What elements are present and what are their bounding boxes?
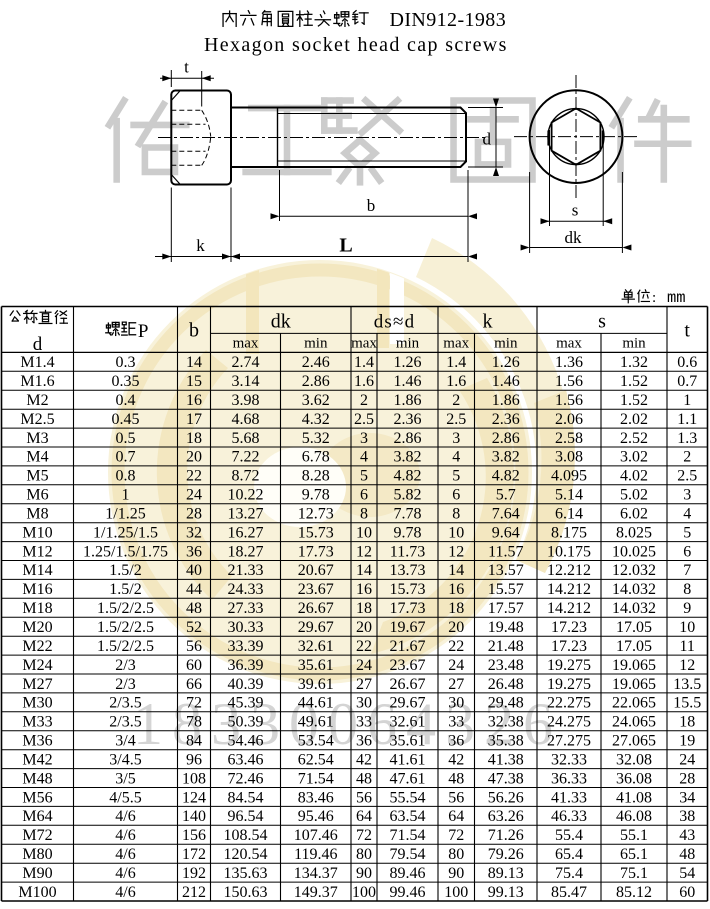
svg-text:43: 43 — [679, 827, 695, 844]
svg-text:17.73: 17.73 — [298, 543, 334, 560]
svg-text:4/6: 4/6 — [115, 846, 135, 863]
svg-text:72: 72 — [356, 827, 372, 844]
svg-text:4/6: 4/6 — [115, 884, 135, 901]
svg-text:8: 8 — [360, 506, 368, 523]
svg-text:16.27: 16.27 — [228, 524, 264, 541]
svg-text:10.175: 10.175 — [547, 543, 591, 560]
svg-text:22: 22 — [448, 638, 464, 655]
svg-text:150.63: 150.63 — [224, 884, 268, 901]
svg-text:36.39: 36.39 — [228, 657, 264, 674]
svg-text:10.025: 10.025 — [612, 543, 656, 560]
svg-text:b: b — [189, 320, 199, 342]
svg-text:ds≈d: ds≈d — [374, 312, 416, 333]
svg-text:5.68: 5.68 — [232, 430, 260, 447]
svg-text:1.56: 1.56 — [555, 373, 583, 390]
svg-text:7.22: 7.22 — [232, 449, 260, 466]
svg-text:3: 3 — [360, 430, 368, 447]
svg-text:17.05: 17.05 — [616, 619, 652, 636]
svg-text:33: 33 — [356, 714, 372, 731]
svg-text:1.46: 1.46 — [394, 373, 422, 390]
svg-text:49.61: 49.61 — [298, 714, 334, 731]
svg-text:6.02: 6.02 — [620, 506, 648, 523]
svg-text:M6: M6 — [26, 487, 48, 504]
svg-text:4.32: 4.32 — [302, 411, 330, 428]
svg-text:24: 24 — [186, 487, 202, 504]
svg-text:4.82: 4.82 — [394, 468, 422, 485]
svg-text:38: 38 — [679, 808, 695, 825]
svg-text:36: 36 — [448, 733, 464, 750]
svg-text:17.73: 17.73 — [390, 600, 426, 617]
svg-text:3/4.5: 3/4.5 — [109, 751, 141, 768]
svg-text:14: 14 — [186, 354, 202, 371]
svg-text:2/3: 2/3 — [115, 657, 135, 674]
svg-text:45.39: 45.39 — [228, 695, 264, 712]
svg-text:23.48: 23.48 — [488, 657, 524, 674]
svg-text:63.26: 63.26 — [488, 808, 524, 825]
svg-text:47.61: 47.61 — [390, 770, 426, 787]
svg-text:14.212: 14.212 — [547, 581, 591, 598]
svg-text:95.46: 95.46 — [298, 808, 334, 825]
svg-text:8.025: 8.025 — [616, 524, 652, 541]
svg-text:M12: M12 — [22, 543, 52, 560]
svg-text:0.35: 0.35 — [112, 373, 140, 390]
svg-text:27: 27 — [356, 676, 372, 693]
svg-text:55.4: 55.4 — [555, 827, 583, 844]
svg-text:13.73: 13.73 — [390, 562, 426, 579]
svg-text:119.46: 119.46 — [294, 846, 337, 863]
svg-text:64: 64 — [448, 808, 464, 825]
svg-text:2.46: 2.46 — [302, 354, 330, 371]
svg-text:M2.5: M2.5 — [20, 411, 54, 428]
svg-text:72: 72 — [448, 827, 464, 844]
svg-text:M27: M27 — [22, 676, 52, 693]
svg-text:26.67: 26.67 — [390, 676, 426, 693]
svg-text:23.67: 23.67 — [390, 657, 426, 674]
svg-text:8.28: 8.28 — [302, 468, 330, 485]
svg-text:100: 100 — [352, 884, 376, 901]
svg-text:18: 18 — [448, 600, 464, 617]
svg-text:2.58: 2.58 — [555, 430, 583, 447]
svg-text:16: 16 — [356, 581, 372, 598]
svg-text:1.4: 1.4 — [446, 354, 466, 371]
svg-text:120.54: 120.54 — [224, 846, 268, 863]
svg-text:4: 4 — [360, 449, 368, 466]
svg-text:20: 20 — [186, 449, 202, 466]
svg-text:12: 12 — [356, 543, 372, 560]
svg-text:1.52: 1.52 — [620, 392, 648, 409]
svg-text:15.73: 15.73 — [390, 581, 426, 598]
svg-text:35.38: 35.38 — [488, 733, 524, 750]
svg-text:2.5: 2.5 — [354, 411, 374, 428]
svg-text:M33: M33 — [22, 714, 52, 731]
svg-text:3.08: 3.08 — [555, 449, 583, 466]
svg-text:P: P — [138, 321, 149, 342]
svg-text:M90: M90 — [22, 865, 52, 882]
svg-text:36.08: 36.08 — [616, 770, 652, 787]
svg-text:19: 19 — [679, 733, 695, 750]
svg-text:10: 10 — [448, 524, 464, 541]
svg-text:47.38: 47.38 — [488, 770, 524, 787]
svg-text:34: 34 — [679, 789, 695, 806]
svg-text:b: b — [367, 196, 376, 215]
svg-text:d: d — [483, 130, 492, 149]
svg-text:72.46: 72.46 — [228, 770, 264, 787]
svg-text:5: 5 — [683, 524, 691, 541]
svg-text:max: max — [351, 336, 377, 352]
svg-text:18.27: 18.27 — [228, 543, 264, 560]
svg-text:4.095: 4.095 — [551, 468, 587, 485]
svg-text:s: s — [598, 311, 606, 333]
svg-text:1.6: 1.6 — [446, 373, 466, 390]
svg-text:M80: M80 — [22, 846, 52, 863]
svg-text:27.33: 27.33 — [228, 600, 264, 617]
svg-text:13.5: 13.5 — [673, 676, 701, 693]
svg-text:9: 9 — [683, 600, 691, 617]
svg-text:55.54: 55.54 — [390, 789, 426, 806]
svg-text:90: 90 — [356, 865, 372, 882]
svg-text:2.86: 2.86 — [394, 430, 422, 447]
svg-text:M18: M18 — [22, 600, 52, 617]
svg-text:M1.6: M1.6 — [20, 373, 54, 390]
svg-text:65.4: 65.4 — [555, 846, 583, 863]
svg-text:96: 96 — [186, 751, 202, 768]
svg-text:M24: M24 — [22, 657, 52, 674]
svg-text:19.065: 19.065 — [612, 657, 656, 674]
svg-text:1.3: 1.3 — [677, 430, 697, 447]
svg-text:12.032: 12.032 — [612, 562, 656, 579]
svg-text:172: 172 — [182, 846, 206, 863]
svg-text:134.37: 134.37 — [294, 865, 338, 882]
svg-text:1: 1 — [122, 487, 130, 504]
svg-text:4/6: 4/6 — [115, 827, 135, 844]
svg-text:17.57: 17.57 — [488, 600, 524, 617]
svg-text:13.57: 13.57 — [488, 562, 524, 579]
svg-text:22.065: 22.065 — [612, 695, 656, 712]
svg-text:89.13: 89.13 — [488, 865, 524, 882]
svg-text:32.33: 32.33 — [551, 751, 587, 768]
svg-text:26.67: 26.67 — [298, 600, 334, 617]
svg-text:12.212: 12.212 — [547, 562, 591, 579]
svg-text:2.74: 2.74 — [232, 354, 260, 371]
svg-text:M36: M36 — [22, 733, 52, 750]
svg-text:35.61: 35.61 — [390, 733, 426, 750]
svg-text:41.38: 41.38 — [488, 751, 524, 768]
svg-text:108: 108 — [182, 770, 206, 787]
svg-text:65.1: 65.1 — [620, 846, 648, 863]
svg-text:0.8: 0.8 — [116, 468, 136, 485]
svg-text:1.5/2: 1.5/2 — [109, 562, 141, 579]
svg-text:27.275: 27.275 — [547, 733, 591, 750]
svg-text:max: max — [556, 336, 582, 352]
svg-text:18: 18 — [356, 600, 372, 617]
svg-text:99.46: 99.46 — [390, 884, 426, 901]
svg-text:1.6: 1.6 — [354, 373, 374, 390]
svg-text:48: 48 — [448, 770, 464, 787]
svg-text:1/1.25: 1/1.25 — [105, 506, 145, 523]
svg-text:135.63: 135.63 — [224, 865, 268, 882]
svg-text:83.46: 83.46 — [298, 789, 334, 806]
svg-text:1.46: 1.46 — [492, 373, 520, 390]
svg-text:29.67: 29.67 — [298, 619, 334, 636]
svg-text:1.32: 1.32 — [620, 354, 648, 371]
svg-text:48: 48 — [186, 600, 202, 617]
svg-text:6.78: 6.78 — [302, 449, 330, 466]
svg-text:19.48: 19.48 — [488, 619, 524, 636]
svg-text:89.46: 89.46 — [390, 865, 426, 882]
svg-text:62.54: 62.54 — [298, 751, 334, 768]
svg-text:22: 22 — [356, 638, 372, 655]
svg-text:M100: M100 — [18, 884, 56, 901]
svg-text:3.62: 3.62 — [302, 392, 330, 409]
svg-text:8: 8 — [683, 581, 691, 598]
svg-text:33: 33 — [448, 714, 464, 731]
svg-text:3/5: 3/5 — [115, 770, 135, 787]
svg-text:32.61: 32.61 — [390, 714, 426, 731]
svg-text:22.275: 22.275 — [547, 695, 591, 712]
svg-text:99.13: 99.13 — [488, 884, 524, 901]
svg-text:30: 30 — [356, 695, 372, 712]
svg-text:1.86: 1.86 — [394, 392, 422, 409]
svg-text:M8: M8 — [26, 506, 48, 523]
svg-text:32.61: 32.61 — [298, 638, 334, 655]
svg-text:56: 56 — [356, 789, 372, 806]
svg-text:212: 212 — [182, 884, 206, 901]
svg-text:55.1: 55.1 — [620, 827, 648, 844]
svg-text:24: 24 — [356, 657, 372, 674]
svg-text:79.26: 79.26 — [488, 846, 524, 863]
svg-text:3: 3 — [683, 487, 691, 504]
svg-text:7.64: 7.64 — [492, 506, 520, 523]
svg-text:90: 90 — [448, 865, 464, 882]
svg-text:s: s — [572, 201, 579, 220]
svg-text:7: 7 — [683, 562, 691, 579]
svg-text:1.26: 1.26 — [492, 354, 520, 371]
svg-text:1.26: 1.26 — [394, 354, 422, 371]
svg-text:4/5.5: 4/5.5 — [109, 789, 141, 806]
svg-text:3/4: 3/4 — [115, 733, 135, 750]
svg-text:1.52: 1.52 — [620, 373, 648, 390]
svg-text:29.48: 29.48 — [488, 695, 524, 712]
svg-text:19.67: 19.67 — [390, 619, 426, 636]
svg-text:20: 20 — [448, 619, 464, 636]
svg-text:84: 84 — [186, 733, 202, 750]
svg-text:3.82: 3.82 — [492, 449, 520, 466]
svg-text:1.5/2/2.5: 1.5/2/2.5 — [97, 638, 154, 655]
svg-text:42: 42 — [448, 751, 464, 768]
svg-text:21.48: 21.48 — [488, 638, 524, 655]
svg-text:18: 18 — [186, 430, 202, 447]
svg-text:5.14: 5.14 — [555, 487, 583, 504]
svg-text:5.82: 5.82 — [394, 487, 422, 504]
svg-text:5.32: 5.32 — [302, 430, 330, 447]
svg-text:42: 42 — [356, 751, 372, 768]
svg-text:27.065: 27.065 — [612, 733, 656, 750]
svg-text:24.275: 24.275 — [547, 714, 591, 731]
svg-text:85.12: 85.12 — [616, 884, 652, 901]
svg-text:min: min — [304, 336, 328, 352]
svg-text:t: t — [184, 58, 189, 77]
svg-text:1.5/2/2.5: 1.5/2/2.5 — [97, 619, 154, 636]
svg-text:15.5: 15.5 — [673, 695, 701, 712]
svg-text:M10: M10 — [22, 524, 52, 541]
svg-text:84.54: 84.54 — [228, 789, 264, 806]
svg-text:4: 4 — [683, 506, 691, 523]
svg-text:78: 78 — [186, 714, 202, 731]
svg-text:60: 60 — [186, 657, 202, 674]
svg-text:20: 20 — [356, 619, 372, 636]
svg-text:2.02: 2.02 — [620, 411, 648, 428]
svg-text:17.23: 17.23 — [551, 638, 587, 655]
svg-text:16: 16 — [186, 392, 202, 409]
svg-text:75.1: 75.1 — [620, 865, 648, 882]
svg-text:1.5/2/2.5: 1.5/2/2.5 — [97, 600, 154, 617]
svg-text:M56: M56 — [22, 789, 52, 806]
svg-text:0.4: 0.4 — [116, 392, 136, 409]
svg-text:44: 44 — [186, 581, 202, 598]
svg-text:M48: M48 — [22, 770, 52, 787]
svg-text:3: 3 — [452, 430, 460, 447]
svg-text:71.26: 71.26 — [488, 827, 524, 844]
svg-text:108.54: 108.54 — [224, 827, 268, 844]
svg-text:107.46: 107.46 — [294, 827, 338, 844]
svg-text:71.54: 71.54 — [390, 827, 426, 844]
svg-text:2.86: 2.86 — [492, 430, 520, 447]
svg-text:0.7: 0.7 — [677, 373, 697, 390]
svg-text:5: 5 — [452, 468, 460, 485]
svg-text:79.54: 79.54 — [390, 846, 426, 863]
svg-text:M4: M4 — [26, 449, 48, 466]
svg-text:10: 10 — [679, 619, 695, 636]
svg-text:M2: M2 — [26, 392, 48, 409]
svg-text:21.33: 21.33 — [228, 562, 264, 579]
svg-text:8.72: 8.72 — [232, 468, 260, 485]
svg-text:24.33: 24.33 — [228, 581, 264, 598]
svg-text:4.68: 4.68 — [232, 411, 260, 428]
svg-text:2.5: 2.5 — [446, 411, 466, 428]
svg-text:1.36: 1.36 — [555, 354, 583, 371]
svg-text:3.02: 3.02 — [620, 449, 648, 466]
svg-text:8.175: 8.175 — [551, 524, 587, 541]
svg-text:80: 80 — [356, 846, 372, 863]
svg-text:M3: M3 — [26, 430, 48, 447]
svg-text:75.4: 75.4 — [555, 865, 583, 882]
svg-text:2.5: 2.5 — [677, 468, 697, 485]
svg-text:52: 52 — [186, 619, 202, 636]
svg-text:6.14: 6.14 — [555, 506, 583, 523]
svg-text:19.275: 19.275 — [547, 676, 591, 693]
svg-text:8: 8 — [452, 506, 460, 523]
svg-text:3.14: 3.14 — [232, 373, 260, 390]
svg-text:14: 14 — [356, 562, 372, 579]
svg-text:20.67: 20.67 — [298, 562, 334, 579]
svg-text:2.86: 2.86 — [302, 373, 330, 390]
svg-text:41.08: 41.08 — [616, 789, 652, 806]
svg-text:72: 72 — [186, 695, 202, 712]
svg-text:6: 6 — [452, 487, 460, 504]
svg-text:46.08: 46.08 — [616, 808, 652, 825]
svg-text:DIN912-1983: DIN912-1983 — [390, 9, 507, 31]
svg-text:4/6: 4/6 — [115, 865, 135, 882]
svg-text:4: 4 — [452, 449, 460, 466]
svg-text:39.61: 39.61 — [298, 676, 334, 693]
svg-text:5.7: 5.7 — [496, 487, 516, 504]
svg-text:9.64: 9.64 — [492, 524, 520, 541]
svg-text:mm: mm — [667, 289, 686, 307]
svg-text:40: 40 — [186, 562, 202, 579]
svg-text:15: 15 — [186, 373, 202, 390]
svg-text:21.67: 21.67 — [390, 638, 426, 655]
svg-text:4/6: 4/6 — [115, 808, 135, 825]
svg-text:32.38: 32.38 — [488, 714, 524, 731]
svg-text:19.065: 19.065 — [612, 676, 656, 693]
svg-text:54.46: 54.46 — [228, 733, 264, 750]
svg-text:24.065: 24.065 — [612, 714, 656, 731]
svg-text:M1.4: M1.4 — [20, 354, 54, 371]
svg-text:1.5/2: 1.5/2 — [109, 581, 141, 598]
svg-text:14.032: 14.032 — [612, 581, 656, 598]
svg-text:23.67: 23.67 — [298, 581, 334, 598]
svg-text:12: 12 — [679, 657, 695, 674]
svg-text:66: 66 — [186, 676, 202, 693]
svg-text:30.33: 30.33 — [228, 619, 264, 636]
svg-text:18: 18 — [679, 714, 695, 731]
svg-text:13.27: 13.27 — [228, 506, 264, 523]
svg-text:M20: M20 — [22, 619, 52, 636]
svg-text:t: t — [684, 320, 690, 342]
svg-text:M22: M22 — [22, 638, 52, 655]
svg-text:2: 2 — [683, 449, 691, 466]
svg-text:M72: M72 — [22, 827, 52, 844]
svg-text:2.36: 2.36 — [492, 411, 520, 428]
svg-text:1: 1 — [683, 392, 691, 409]
svg-text:M42: M42 — [22, 751, 52, 768]
svg-text:12.73: 12.73 — [298, 506, 334, 523]
svg-text:3.98: 3.98 — [232, 392, 260, 409]
svg-text:Hexagon socket head cap screws: Hexagon socket head cap screws — [204, 34, 508, 56]
svg-text::: : — [652, 290, 656, 306]
svg-text:min: min — [396, 336, 420, 352]
svg-text:33.39: 33.39 — [228, 638, 264, 655]
svg-text:53.54: 53.54 — [298, 733, 334, 750]
svg-text:min: min — [494, 336, 518, 352]
svg-text:56: 56 — [448, 789, 464, 806]
svg-text:36: 36 — [186, 543, 202, 560]
svg-text:2/3.5: 2/3.5 — [109, 714, 141, 731]
svg-text:41.61: 41.61 — [390, 751, 426, 768]
svg-text:124: 124 — [182, 789, 206, 806]
svg-text:0.7: 0.7 — [116, 449, 136, 466]
svg-text:27: 27 — [448, 676, 464, 693]
svg-text:M30: M30 — [22, 695, 52, 712]
svg-text:0.5: 0.5 — [116, 430, 136, 447]
svg-text:14.212: 14.212 — [547, 600, 591, 617]
svg-text:2/3: 2/3 — [115, 676, 135, 693]
svg-text:5.02: 5.02 — [620, 487, 648, 504]
svg-text:9.78: 9.78 — [394, 524, 422, 541]
svg-text:2.52: 2.52 — [620, 430, 648, 447]
svg-text:41.33: 41.33 — [551, 789, 587, 806]
svg-text:40.39: 40.39 — [228, 676, 264, 693]
svg-text:14.032: 14.032 — [612, 600, 656, 617]
svg-text:17: 17 — [186, 411, 202, 428]
svg-text:44.61: 44.61 — [298, 695, 334, 712]
svg-text:16: 16 — [448, 581, 464, 598]
svg-text:60: 60 — [679, 884, 695, 901]
svg-text:32.08: 32.08 — [616, 751, 652, 768]
svg-text:26.48: 26.48 — [488, 676, 524, 693]
svg-text:11.73: 11.73 — [390, 543, 425, 560]
svg-text:24: 24 — [679, 751, 695, 768]
